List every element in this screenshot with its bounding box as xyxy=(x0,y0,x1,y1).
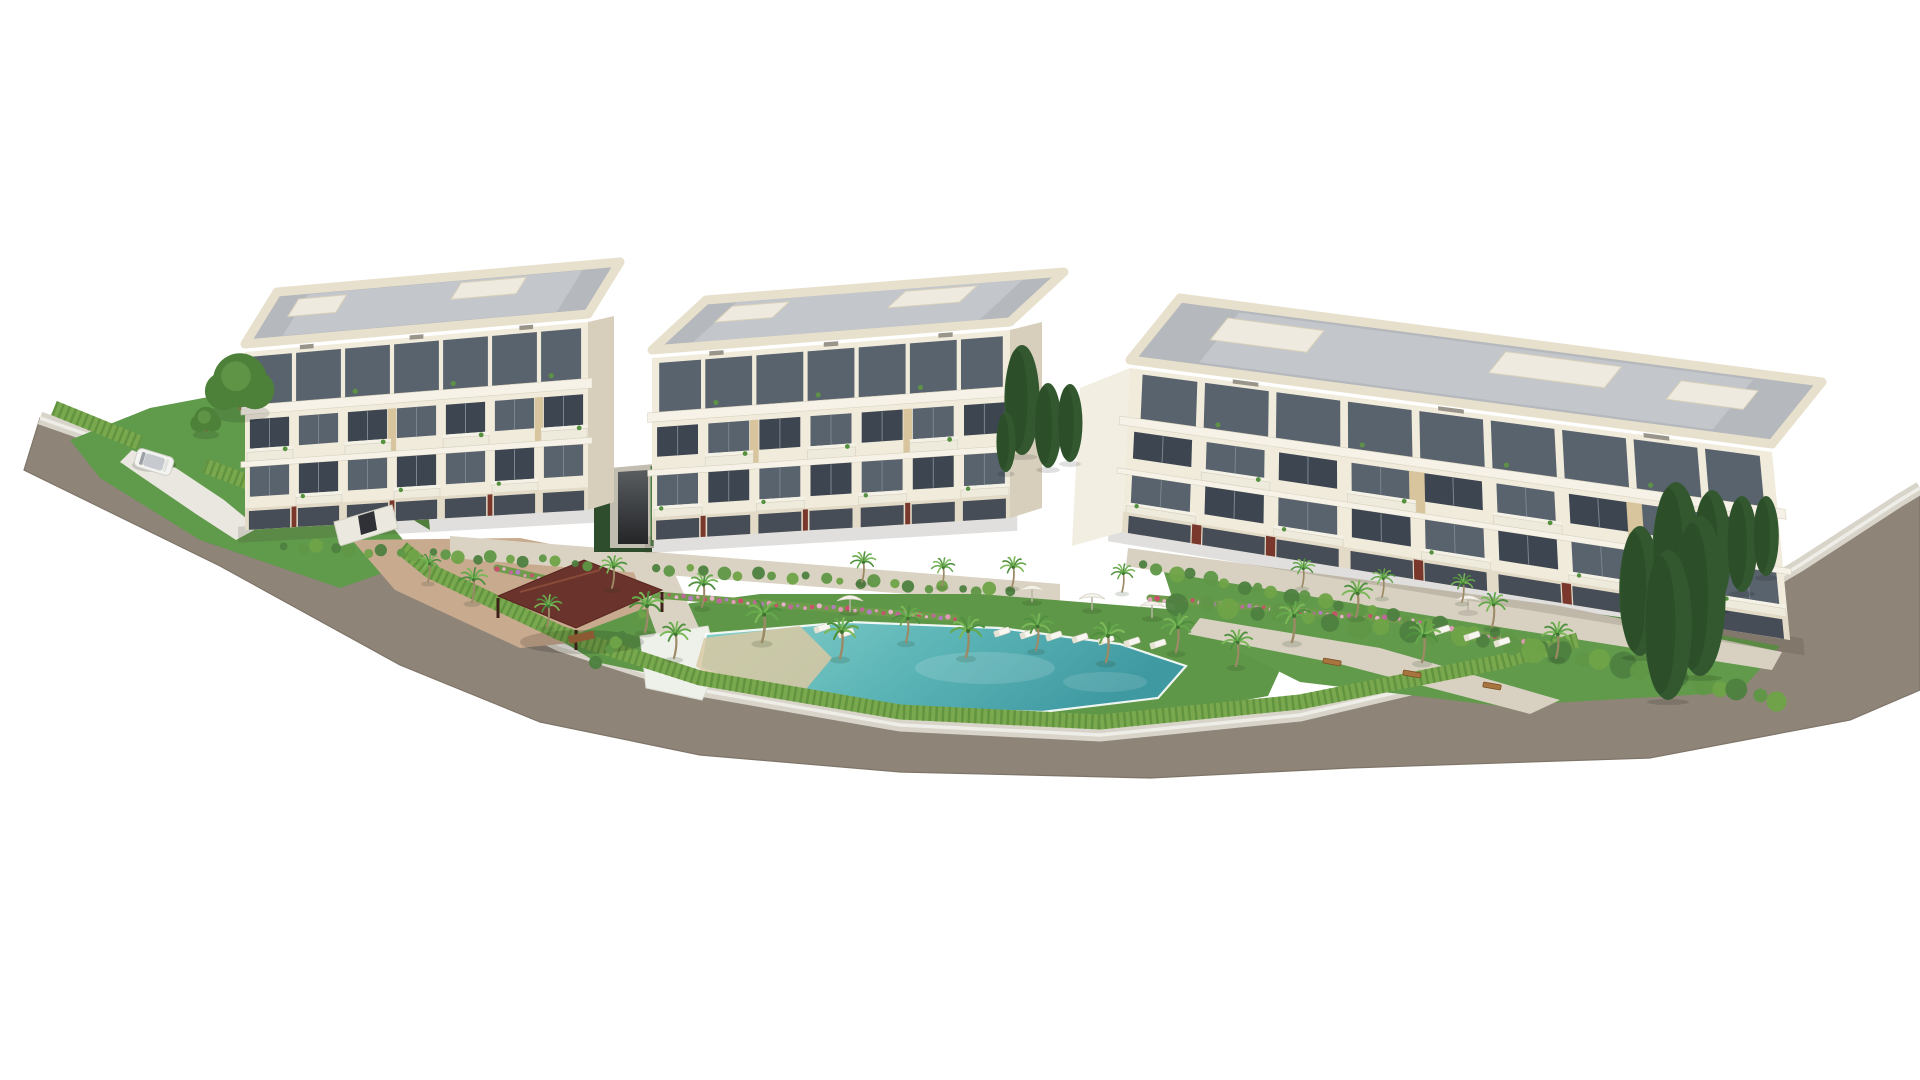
bush xyxy=(517,556,529,568)
side-wall xyxy=(1072,368,1130,546)
bush xyxy=(1238,581,1252,595)
bush xyxy=(1169,566,1185,582)
bush xyxy=(309,539,323,553)
bush xyxy=(1725,678,1747,700)
terrace-plant xyxy=(918,385,923,390)
bush xyxy=(821,573,832,584)
privacy-divider xyxy=(803,509,808,531)
bush xyxy=(718,567,732,581)
column xyxy=(1412,408,1421,460)
balcony-plant xyxy=(659,506,663,510)
bush xyxy=(1352,604,1366,618)
bush xyxy=(664,565,675,576)
balcony-plant xyxy=(1256,477,1261,482)
bush xyxy=(787,573,799,585)
balcony-plant xyxy=(1134,504,1138,508)
terrace-glazing xyxy=(249,509,290,530)
scene-canvas xyxy=(0,0,1920,1080)
bush xyxy=(408,550,419,561)
bush xyxy=(1283,589,1299,605)
bush xyxy=(572,560,579,567)
bush xyxy=(1166,593,1189,616)
terrace-plant xyxy=(1648,483,1653,488)
terrace-glazing xyxy=(543,491,584,513)
column xyxy=(906,342,910,396)
bush xyxy=(1576,652,1591,667)
balcony-plant xyxy=(743,451,748,456)
bush xyxy=(836,578,843,585)
balcony-plant xyxy=(1402,499,1407,504)
terrace-glazing xyxy=(494,494,535,516)
balcony-plant xyxy=(845,444,850,449)
terrace-plant xyxy=(713,400,718,405)
bush xyxy=(589,656,602,669)
balcony-plant xyxy=(966,487,970,491)
column xyxy=(292,351,296,403)
column xyxy=(537,330,541,385)
bush xyxy=(1299,590,1311,602)
bush xyxy=(1368,605,1378,615)
column xyxy=(1340,399,1348,450)
bush xyxy=(1264,586,1277,599)
column xyxy=(390,343,394,396)
terrace-plant xyxy=(353,389,358,394)
bush xyxy=(802,572,810,580)
bush xyxy=(1204,571,1219,586)
column xyxy=(1196,380,1205,429)
terrace-glazing xyxy=(396,500,437,522)
column xyxy=(854,346,858,400)
balcony-plant xyxy=(381,439,386,444)
bush xyxy=(1150,563,1162,575)
balcony-plant xyxy=(1429,550,1433,554)
bush xyxy=(867,574,880,587)
terrace-plant xyxy=(1504,462,1509,467)
bush xyxy=(1217,598,1238,619)
bush xyxy=(1766,691,1786,711)
privacy-divider xyxy=(701,516,706,537)
terrace-plant xyxy=(451,381,456,386)
bush xyxy=(375,544,387,556)
building-left xyxy=(238,262,620,543)
column xyxy=(752,354,756,408)
privacy-divider xyxy=(292,506,297,527)
column xyxy=(439,338,443,392)
column xyxy=(957,338,961,393)
bush xyxy=(1589,649,1610,670)
bush xyxy=(451,550,465,564)
privacy-divider xyxy=(488,494,493,516)
terrace-plant xyxy=(1215,422,1220,427)
bush xyxy=(1250,607,1264,621)
terrace-glazing xyxy=(298,506,339,527)
bush xyxy=(1630,662,1649,681)
bush xyxy=(1521,639,1546,664)
bush xyxy=(484,550,497,563)
bush xyxy=(331,543,341,553)
pool-sparkle xyxy=(915,652,1055,684)
bush xyxy=(440,549,451,560)
balcony-plant xyxy=(864,493,868,497)
terrace-glazing xyxy=(758,512,801,534)
column xyxy=(341,347,345,400)
privacy-divider xyxy=(905,503,910,525)
bush xyxy=(1219,578,1229,588)
column xyxy=(652,362,654,415)
bush xyxy=(550,555,561,566)
bush xyxy=(473,555,483,565)
balcony-plant xyxy=(479,432,484,437)
balcony-plant xyxy=(1548,520,1553,525)
terrace-glazing xyxy=(707,515,750,537)
building-middle xyxy=(645,272,1064,553)
balcony-plant xyxy=(577,426,582,431)
bush xyxy=(1753,688,1767,702)
privacy-divider xyxy=(1414,559,1424,581)
terrace-glazing xyxy=(963,499,1006,521)
terrace-glazing xyxy=(445,497,486,519)
pool-sparkle xyxy=(1063,672,1147,692)
terrace-glazing xyxy=(810,508,853,530)
bush xyxy=(752,567,765,580)
balcony-plant xyxy=(497,481,501,485)
bush xyxy=(902,580,914,592)
bush xyxy=(1373,619,1390,636)
palm-tree xyxy=(1112,564,1135,596)
terrace-plant xyxy=(816,392,821,397)
bush xyxy=(342,544,355,557)
column xyxy=(488,334,492,388)
bush xyxy=(971,586,982,597)
bush xyxy=(1184,568,1195,579)
bush xyxy=(582,561,592,571)
bush xyxy=(767,571,776,580)
bush xyxy=(687,564,694,571)
bush xyxy=(925,585,933,593)
bush xyxy=(890,579,899,588)
privacy-divider xyxy=(1266,536,1276,557)
bush xyxy=(1139,560,1147,568)
column xyxy=(1268,390,1276,440)
balcony-plant xyxy=(1282,527,1286,531)
bush xyxy=(1321,614,1339,632)
terrace-glazing xyxy=(912,502,955,524)
bush xyxy=(397,549,405,557)
bush xyxy=(364,549,373,558)
terrace-plant xyxy=(1360,442,1365,447)
side-wall xyxy=(588,316,614,510)
architectural-aerial-render xyxy=(0,0,1920,1080)
balcony-plant xyxy=(1577,573,1581,577)
bush xyxy=(539,554,547,562)
bush xyxy=(959,585,967,593)
bush xyxy=(982,582,996,596)
privacy-divider xyxy=(1562,583,1572,605)
bush xyxy=(618,631,626,639)
terrace-glazing xyxy=(656,518,699,540)
bush xyxy=(1333,601,1344,612)
bush xyxy=(1318,593,1333,608)
bush xyxy=(733,571,743,581)
terrace-plant xyxy=(549,373,554,378)
terrace-glazing xyxy=(861,505,904,527)
column xyxy=(586,326,588,381)
bush xyxy=(1387,608,1400,621)
balcony-plant xyxy=(283,446,288,451)
balcony-plant xyxy=(301,494,305,498)
bush xyxy=(652,564,660,572)
column xyxy=(803,350,807,404)
bush xyxy=(506,555,515,564)
balcony-plant xyxy=(399,488,403,492)
balcony-plant xyxy=(947,437,952,442)
bush xyxy=(1253,583,1262,592)
bush xyxy=(1199,596,1215,612)
privacy-divider xyxy=(1192,524,1202,545)
bush xyxy=(280,543,288,551)
bush xyxy=(298,544,309,555)
column xyxy=(701,358,705,411)
balcony-plant xyxy=(761,500,765,504)
